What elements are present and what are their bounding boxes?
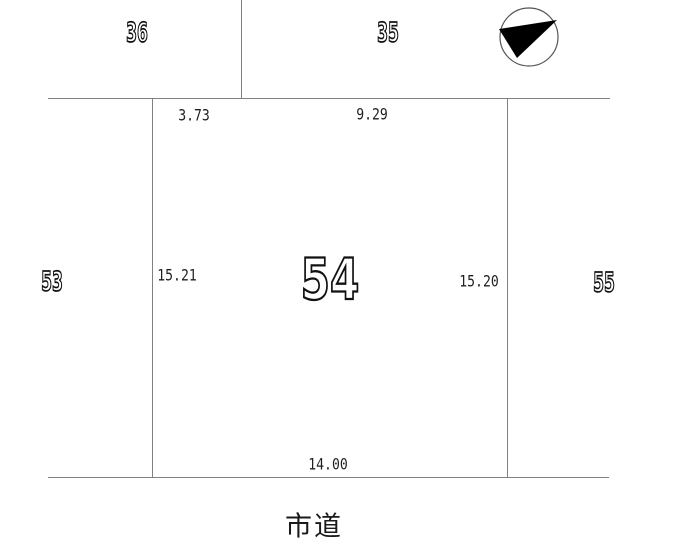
dimension-right-side: 15.20 (459, 272, 499, 291)
dimension-left-side: 15.21 (157, 266, 197, 285)
parcel-number-label: 54 (301, 247, 360, 313)
neighbor-parcel-35-label: 35 (377, 18, 399, 49)
road-boundary-line (48, 477, 609, 478)
parcel-right-boundary-line (507, 98, 508, 478)
north-arrow-icon (497, 4, 563, 70)
road-label: 市道 (285, 505, 343, 544)
parcel-left-boundary-line (152, 98, 153, 478)
neighbor-parcel-36-label: 36 (126, 18, 148, 49)
cadastral-plot-map: 36 35 53 55 54 3.73 9.29 15.21 15.20 14.… (0, 0, 686, 555)
dimension-top-right: 9.29 (356, 105, 388, 124)
parcel-top-boundary-line (48, 98, 610, 99)
neighbor-parcel-55-label: 55 (593, 268, 615, 299)
dimension-bottom: 14.00 (308, 455, 348, 474)
dimension-top-left: 3.73 (178, 106, 210, 125)
neighbor-parcel-53-label: 53 (41, 267, 63, 298)
neighbor-divider-line (241, 0, 242, 98)
